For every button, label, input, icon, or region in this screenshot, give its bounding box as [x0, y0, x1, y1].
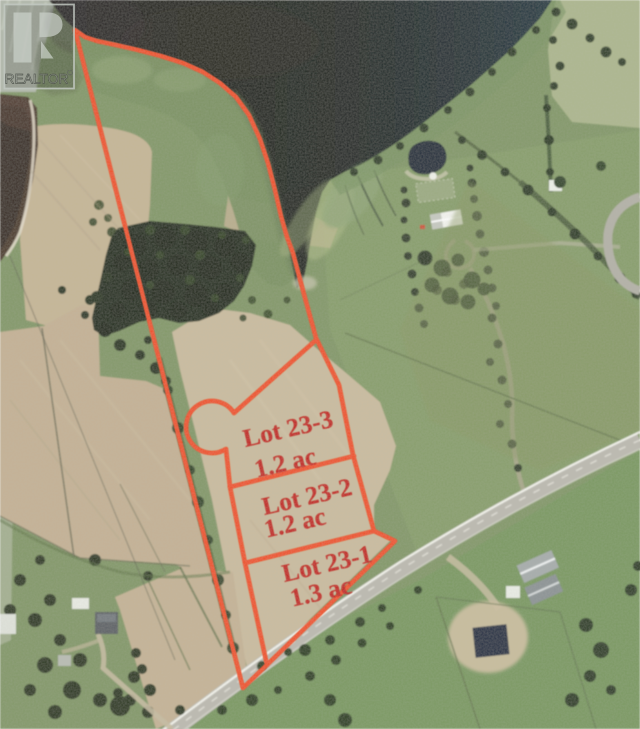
- svg-text:REALTOR: REALTOR: [5, 72, 69, 87]
